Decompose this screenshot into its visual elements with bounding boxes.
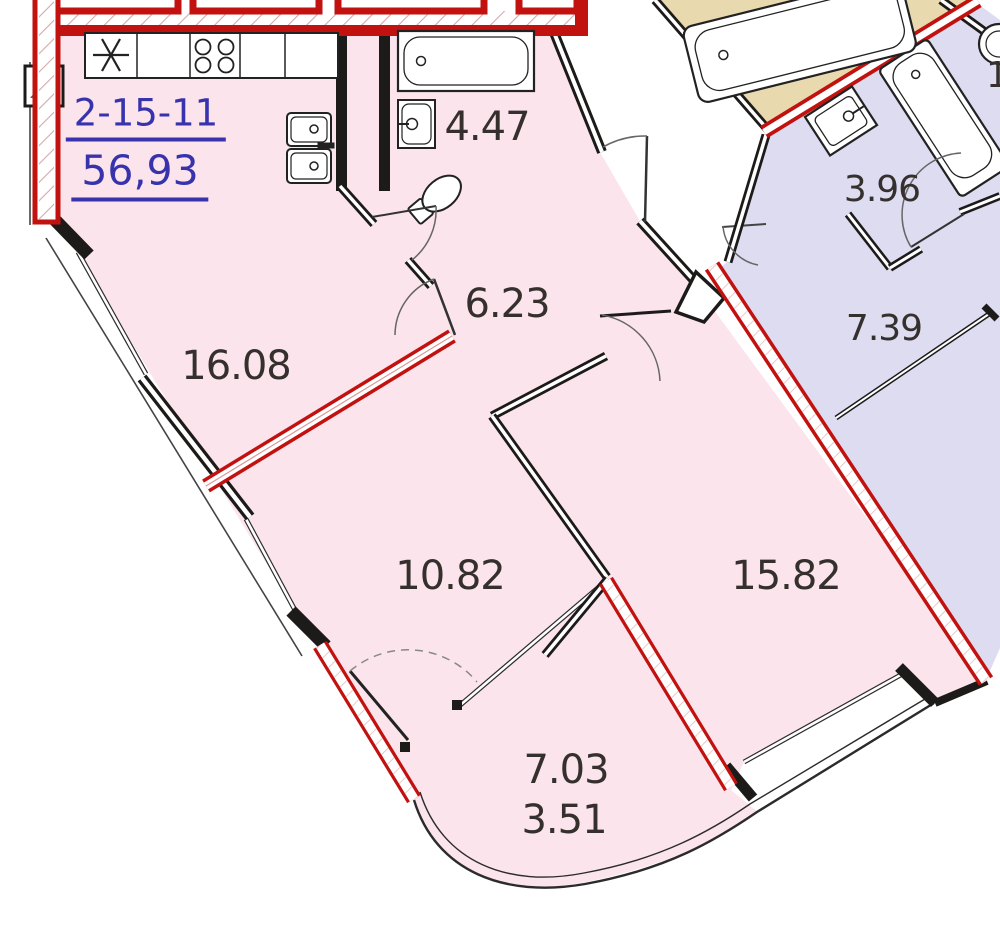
wall-top-corner [575, 0, 588, 36]
kitchen-sink-icon [287, 113, 334, 183]
floor-plan: 2-15-11 56,93 4.47 6.23 16.08 10.82 15.8… [0, 0, 1000, 934]
room-area-label-balcony-reduced: 3.51 [521, 800, 606, 840]
bathtub-icon [398, 31, 534, 91]
unit-total-area-label: 56,93 [71, 151, 208, 202]
room-area-label-living: 16.08 [181, 346, 291, 386]
room-area-label-hallway: 6.23 [464, 284, 549, 324]
room-area-label-neighbor-room: 7.39 [846, 311, 922, 347]
room-area-label-balcony: 7.03 [523, 750, 608, 790]
unit-id-label: 2-15-11 [66, 95, 226, 142]
room-area-label-neighbor-bath: 3.96 [844, 172, 920, 208]
room-area-label-bathroom: 4.47 [444, 107, 529, 147]
washbasin-icon [398, 100, 435, 148]
upper-floor-boxes [48, 0, 577, 11]
room-area-label-room15: 15.82 [731, 556, 841, 596]
room-area-label-bedroom: 10.82 [395, 556, 505, 596]
wall-left [35, 0, 58, 222]
room-area-label-neighbor-partial: 1 [986, 58, 1000, 94]
